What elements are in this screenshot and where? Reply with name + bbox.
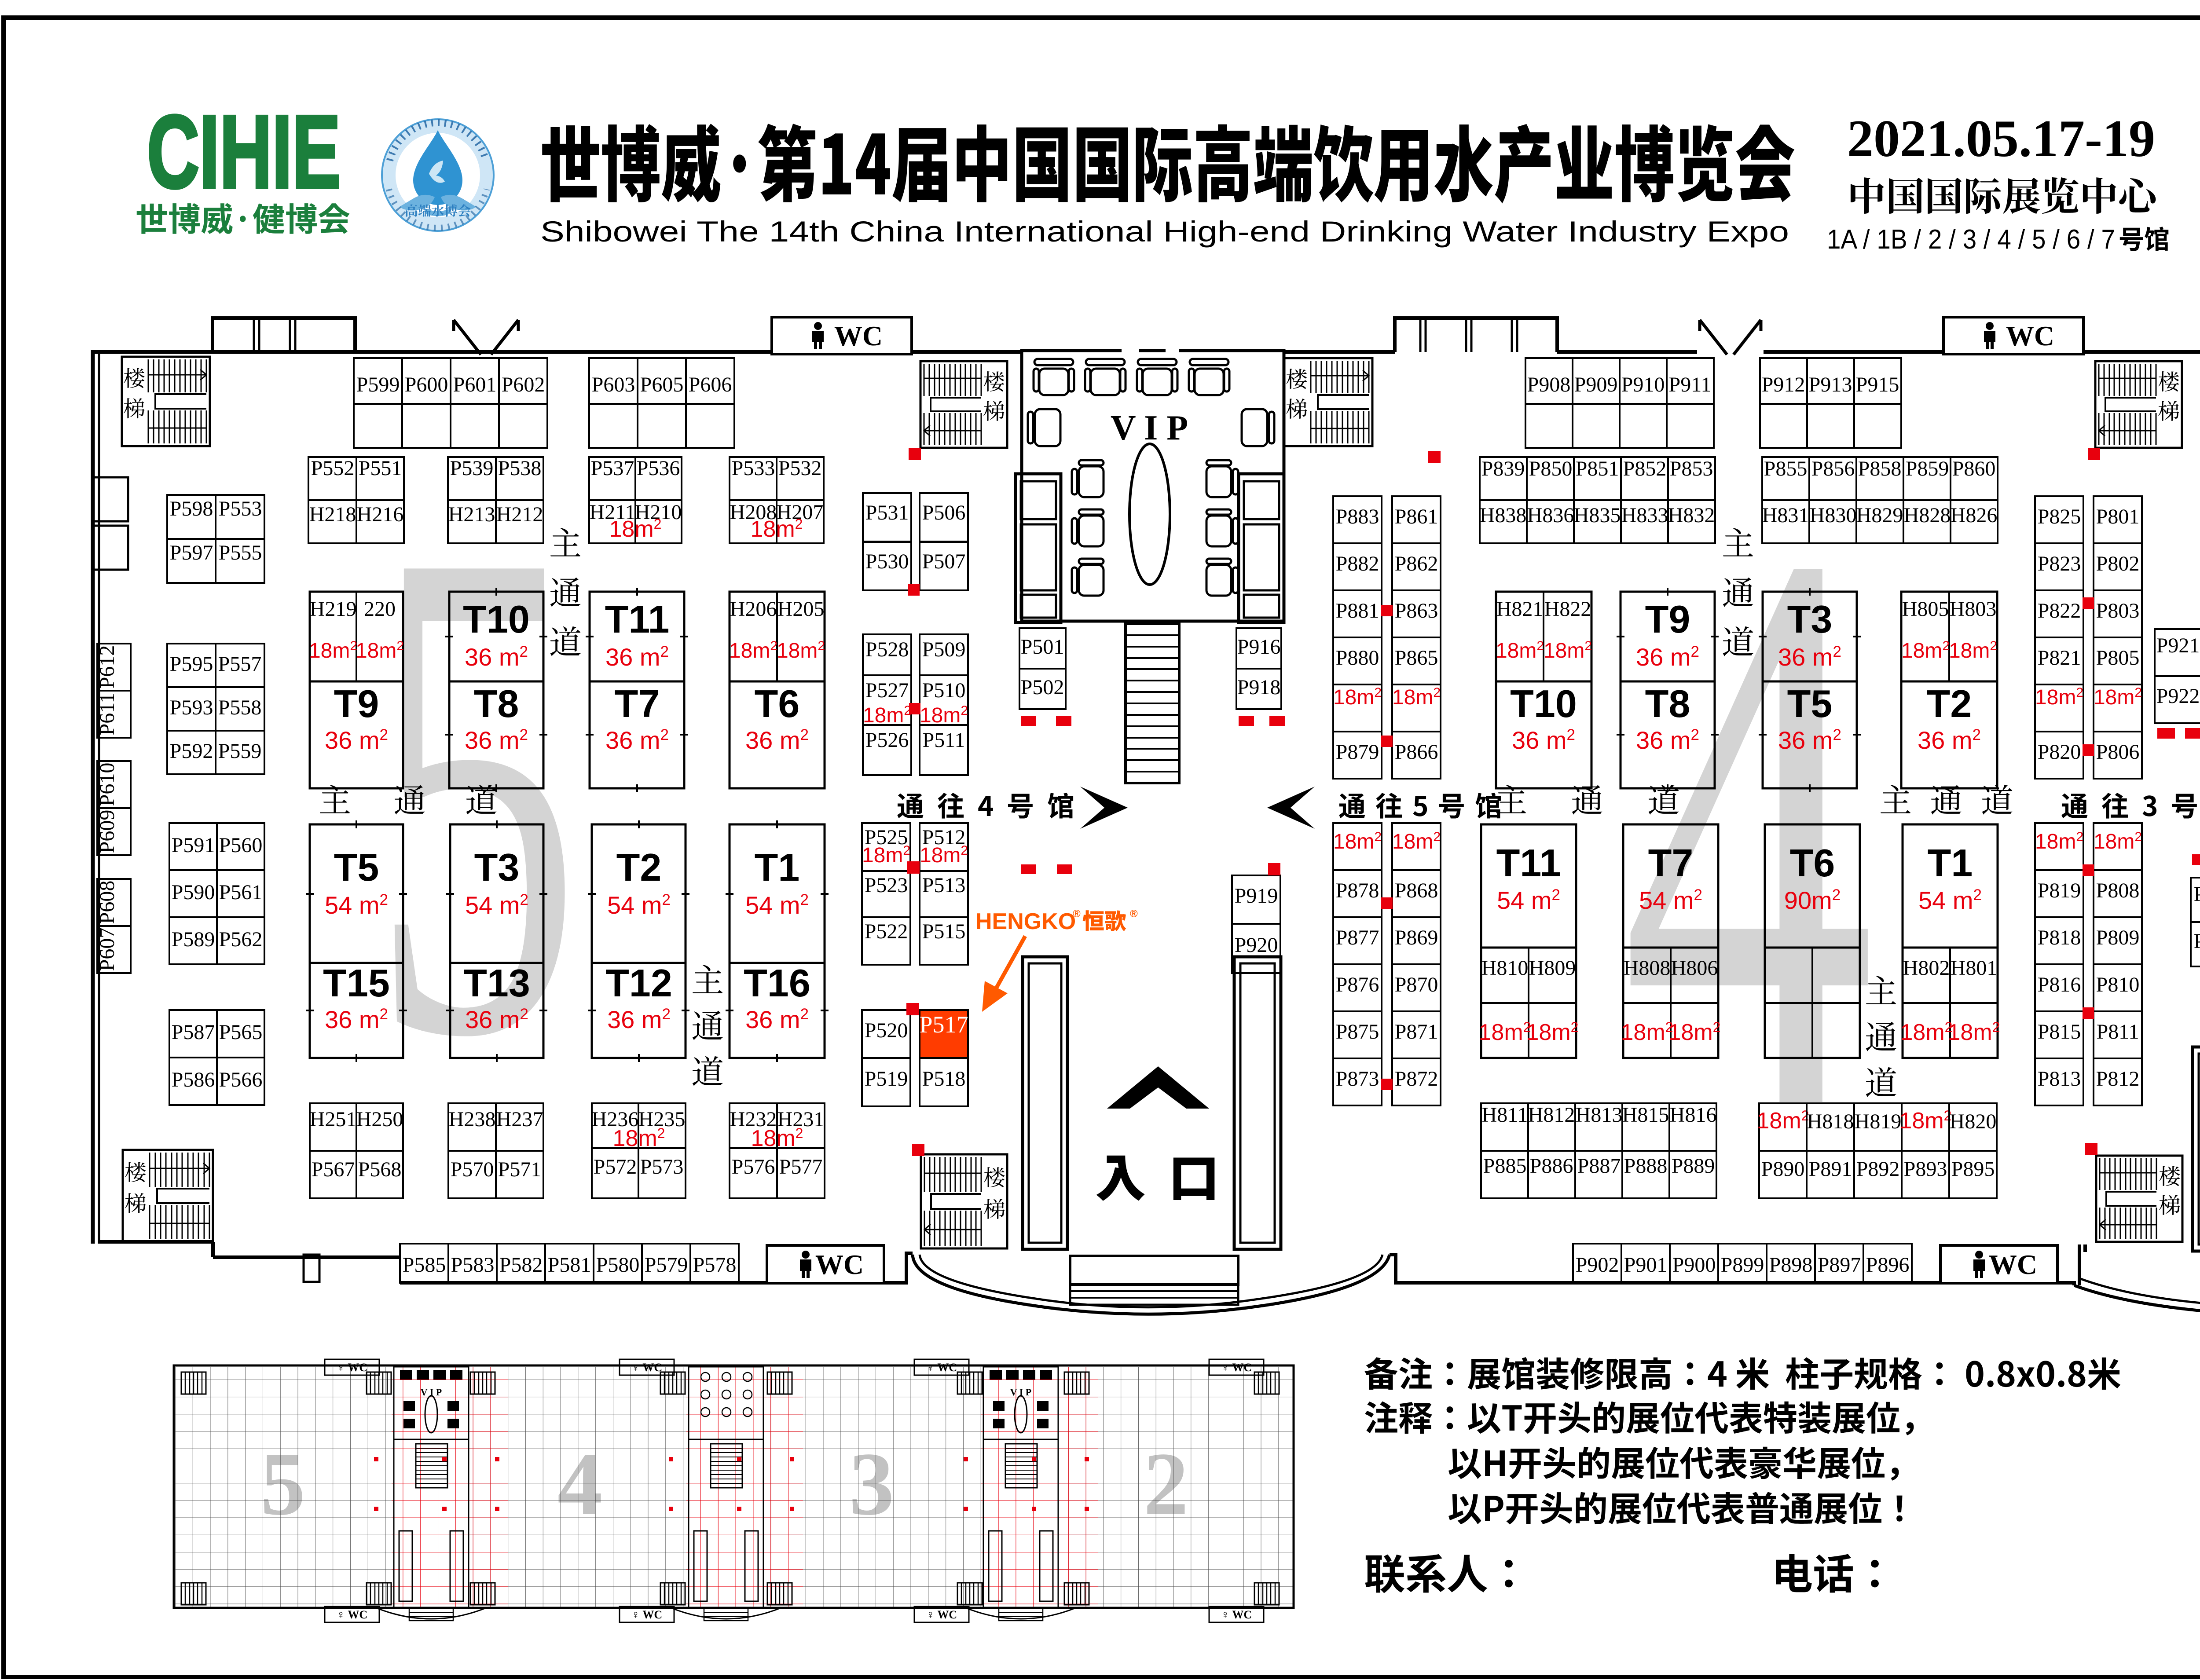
svg-text:H816: H816	[1670, 1103, 1717, 1127]
svg-text:P573: P573	[640, 1155, 684, 1179]
svg-text:2021.05.17-19: 2021.05.17-19	[1847, 109, 2155, 168]
svg-text:T1: T1	[755, 845, 800, 889]
svg-text:P922: P922	[2156, 684, 2200, 708]
svg-text:P919: P919	[1235, 884, 1278, 908]
svg-text:H212: H212	[496, 503, 543, 526]
svg-text:H218: H218	[309, 503, 356, 526]
svg-text:P876: P876	[1336, 973, 1379, 996]
svg-text:P533: P533	[732, 457, 775, 480]
svg-text:CIHIE: CIHIE	[147, 94, 341, 209]
svg-text:H251: H251	[310, 1108, 357, 1131]
svg-text:P850: P850	[1529, 457, 1573, 480]
svg-text:18m2: 18m2	[1900, 1019, 1953, 1045]
svg-text:P820: P820	[2038, 740, 2081, 764]
svg-text:♀ WC: ♀ WC	[1221, 1608, 1252, 1621]
svg-text:36 m2: 36 m2	[607, 1006, 671, 1033]
svg-text:P557: P557	[218, 652, 262, 676]
svg-text:P886: P886	[1530, 1154, 1573, 1178]
svg-text:H836: H836	[1527, 504, 1574, 527]
svg-text:P810: P810	[2096, 973, 2140, 996]
svg-text:P576: P576	[732, 1155, 775, 1179]
svg-text:P878: P878	[1336, 879, 1379, 902]
svg-text:T10: T10	[463, 597, 530, 641]
svg-text:P813: P813	[2038, 1067, 2081, 1091]
svg-text:36 m2: 36 m2	[1778, 643, 1841, 671]
svg-text:P819: P819	[2038, 879, 2081, 902]
svg-text:H206: H206	[730, 597, 777, 621]
svg-text:P560: P560	[219, 834, 263, 857]
svg-text:P870: P870	[1395, 973, 1438, 996]
svg-text:♀ WC: ♀ WC	[631, 1608, 662, 1621]
svg-text:54 m2: 54 m2	[745, 891, 809, 919]
svg-text:P882: P882	[1336, 552, 1379, 575]
svg-text:♀ WC: ♀ WC	[337, 1608, 367, 1621]
svg-text:P517: P517	[919, 1011, 968, 1038]
svg-text:P853: P853	[1670, 457, 1713, 480]
svg-text:P582: P582	[499, 1253, 543, 1277]
svg-text:36 m2: 36 m2	[465, 726, 528, 754]
svg-text:P879: P879	[1336, 740, 1379, 764]
svg-text:P859: P859	[1906, 457, 1949, 480]
svg-text:P526: P526	[865, 728, 909, 752]
svg-text:P899: P899	[1721, 1253, 1764, 1277]
svg-text:P900: P900	[1672, 1253, 1716, 1277]
svg-text:T12: T12	[605, 961, 672, 1005]
svg-text:P528: P528	[865, 638, 909, 661]
svg-text:H833: H833	[1621, 504, 1668, 527]
svg-text:P909: P909	[1574, 373, 1618, 396]
svg-text:H805: H805	[1902, 597, 1949, 621]
svg-text:T8: T8	[474, 682, 519, 725]
svg-text:H835: H835	[1574, 504, 1621, 527]
svg-text:P887: P887	[1577, 1154, 1621, 1178]
svg-text:T7: T7	[615, 682, 660, 725]
svg-text:P532: P532	[778, 457, 822, 480]
svg-text:H829: H829	[1856, 504, 1903, 527]
svg-text:P821: P821	[2038, 646, 2081, 670]
svg-text:P891: P891	[1809, 1157, 1852, 1181]
svg-text:36 m2: 36 m2	[1636, 726, 1699, 754]
svg-text:1A / 1B / 2 / 3 / 4 / 5 / 6 /: 1A / 1B / 2 / 3 / 4 / 5 / 6 / 7	[1827, 224, 2115, 255]
svg-text:T3: T3	[1787, 597, 1833, 641]
svg-text:P601: P601	[453, 373, 497, 396]
svg-text:P869: P869	[1395, 926, 1438, 949]
svg-text:T2: T2	[1927, 682, 1972, 725]
svg-text:P915: P915	[1856, 373, 1899, 396]
svg-text:P895: P895	[1951, 1157, 1995, 1181]
svg-text:P612: P612	[95, 645, 119, 689]
svg-text:P578: P578	[693, 1253, 737, 1277]
svg-text:P908: P908	[1527, 373, 1571, 396]
svg-text:36 m2: 36 m2	[605, 726, 669, 754]
svg-text:P863: P863	[1395, 599, 1438, 622]
svg-text:P558: P558	[218, 696, 262, 719]
svg-text:♀ WC: ♀ WC	[1221, 1361, 1252, 1374]
svg-text:P801: P801	[2096, 505, 2140, 528]
svg-text:P868: P868	[1395, 879, 1438, 902]
svg-text:P555: P555	[219, 541, 262, 564]
svg-text:P883: P883	[1336, 505, 1379, 528]
svg-text:®: ®	[1073, 908, 1081, 920]
svg-text:P579: P579	[645, 1253, 688, 1277]
svg-text:36 m2: 36 m2	[325, 726, 388, 754]
svg-text:54 m2: 54 m2	[1639, 886, 1702, 914]
svg-text:P530: P530	[865, 550, 909, 573]
svg-text:P537: P537	[591, 457, 634, 480]
svg-text:36 m2: 36 m2	[1918, 726, 1981, 754]
svg-text:54 m2: 54 m2	[1918, 886, 1982, 914]
svg-text:H237: H237	[496, 1108, 543, 1131]
svg-text:P856: P856	[1811, 457, 1855, 480]
svg-text:WC: WC	[2006, 320, 2054, 351]
svg-text:P552: P552	[311, 457, 355, 480]
svg-text:P802: P802	[2096, 552, 2140, 575]
svg-text:T5: T5	[334, 845, 379, 889]
svg-text:36 m2: 36 m2	[745, 726, 809, 754]
svg-text:220: 220	[364, 597, 396, 621]
svg-text:P518: P518	[922, 1067, 966, 1091]
svg-text:P607: P607	[95, 928, 119, 971]
svg-text:P602: P602	[502, 373, 545, 396]
svg-text:H826: H826	[1951, 504, 1998, 527]
svg-text:H811: H811	[1482, 1103, 1528, 1127]
svg-text:H809: H809	[1529, 956, 1576, 980]
svg-text:P823: P823	[2038, 552, 2081, 575]
svg-text:P519: P519	[865, 1067, 908, 1091]
svg-text:P890: P890	[1761, 1157, 1805, 1181]
svg-text:18m2: 18m2	[751, 1125, 803, 1151]
svg-text:H813: H813	[1576, 1103, 1623, 1127]
svg-text:H213: H213	[448, 503, 495, 526]
svg-text:H838: H838	[1480, 504, 1527, 527]
svg-text:18m2: 18m2	[1668, 1019, 1721, 1045]
svg-text:♀ WC: ♀ WC	[337, 1361, 367, 1374]
svg-text:P811: P811	[2097, 1020, 2139, 1043]
svg-text:18m2: 18m2	[751, 516, 803, 542]
svg-text:P901: P901	[1624, 1253, 1668, 1277]
svg-text:P523: P523	[865, 874, 908, 897]
svg-text:T15: T15	[323, 961, 390, 1005]
svg-text:18m2: 18m2	[1621, 1019, 1673, 1045]
svg-text:H821: H821	[1496, 597, 1544, 621]
svg-text:P920: P920	[1235, 933, 1278, 957]
svg-text:T1: T1	[1928, 841, 1973, 885]
svg-text:P600: P600	[405, 373, 448, 396]
svg-text:P892: P892	[1856, 1157, 1900, 1181]
svg-text:P875: P875	[1336, 1020, 1379, 1043]
svg-text:P603: P603	[592, 373, 635, 396]
svg-text:P527: P527	[865, 679, 909, 702]
svg-text:T9: T9	[1645, 597, 1690, 641]
svg-text:H831: H831	[1762, 504, 1809, 527]
svg-text:P888: P888	[1624, 1154, 1668, 1178]
svg-text:P910: P910	[1621, 373, 1665, 396]
svg-text:P593: P593	[170, 696, 213, 719]
svg-text:♀ WC: ♀ WC	[631, 1361, 662, 1374]
svg-text:T11: T11	[1496, 841, 1561, 885]
svg-text:P881: P881	[1336, 599, 1379, 622]
svg-text:H820: H820	[1950, 1110, 1997, 1133]
svg-text:P923: P923	[2194, 882, 2200, 906]
svg-text:P606: P606	[689, 373, 732, 396]
svg-text:36 m2: 36 m2	[465, 643, 528, 671]
svg-text:P501: P501	[1021, 635, 1064, 659]
svg-text:H802: H802	[1903, 956, 1950, 980]
svg-text:18m2: 18m2	[613, 1125, 665, 1151]
svg-text:36 m2: 36 m2	[1512, 726, 1575, 754]
svg-text:P559: P559	[218, 739, 262, 763]
svg-text:P592: P592	[170, 739, 213, 763]
svg-text:P581: P581	[548, 1253, 591, 1277]
svg-text:P585: P585	[403, 1253, 446, 1277]
svg-text:P860: P860	[1952, 457, 1996, 480]
svg-text:P522: P522	[865, 920, 908, 943]
svg-text:P815: P815	[2038, 1020, 2081, 1043]
svg-text:T3: T3	[474, 845, 520, 889]
svg-text:P551: P551	[359, 457, 402, 480]
svg-text:P916: P916	[1237, 635, 1281, 659]
svg-text:P880: P880	[1336, 646, 1379, 670]
svg-text:H822: H822	[1544, 597, 1591, 621]
svg-text:H806: H806	[1671, 956, 1718, 980]
svg-text:T6: T6	[755, 682, 800, 725]
svg-text:P610: P610	[95, 763, 119, 806]
svg-text:P898: P898	[1769, 1253, 1813, 1277]
svg-text:54 m2: 54 m2	[607, 891, 671, 919]
svg-text:H238: H238	[449, 1108, 496, 1131]
svg-text:P520: P520	[865, 1019, 908, 1042]
svg-text:P595: P595	[170, 652, 213, 676]
svg-text:P515: P515	[922, 920, 966, 943]
svg-text:36 m2: 36 m2	[1778, 726, 1841, 754]
svg-text:P839: P839	[1481, 457, 1525, 480]
svg-text:H812: H812	[1528, 1103, 1575, 1127]
svg-text:T16: T16	[744, 961, 810, 1005]
svg-text:P568: P568	[358, 1158, 402, 1181]
svg-text:P538: P538	[498, 457, 542, 480]
svg-text:P531: P531	[865, 501, 909, 524]
svg-text:P598: P598	[170, 497, 213, 520]
svg-text:P885: P885	[1483, 1154, 1527, 1178]
svg-text:H250: H250	[356, 1108, 403, 1131]
svg-text:H828: H828	[1904, 504, 1951, 527]
svg-text:V I P: V I P	[1111, 409, 1188, 447]
svg-text:P816: P816	[2038, 973, 2081, 996]
svg-text:Shibowei The 14th China Intern: Shibowei The 14th China International Hi…	[540, 215, 1789, 248]
svg-text:H216: H216	[357, 503, 404, 526]
svg-text:P805: P805	[2096, 646, 2140, 670]
svg-text:P889: P889	[1672, 1154, 1715, 1178]
svg-text:P591: P591	[172, 834, 215, 857]
svg-text:P609: P609	[95, 810, 119, 853]
svg-text:P570: P570	[451, 1158, 494, 1181]
svg-text:P808: P808	[2096, 879, 2140, 902]
svg-text:P590: P590	[172, 881, 215, 904]
svg-text:P536: P536	[637, 457, 680, 480]
svg-text:P605: P605	[640, 373, 684, 396]
svg-text:36 m2: 36 m2	[465, 1006, 528, 1033]
svg-text:T11: T11	[605, 597, 670, 641]
svg-text:P611: P611	[95, 693, 119, 736]
svg-text:P511: P511	[923, 728, 965, 752]
svg-text:H808: H808	[1624, 956, 1671, 980]
svg-text:P507: P507	[922, 550, 966, 573]
svg-text:P812: P812	[2096, 1067, 2140, 1091]
svg-text:P608: P608	[95, 881, 119, 924]
svg-text:P509: P509	[922, 638, 966, 661]
svg-text:P862: P862	[1395, 552, 1438, 575]
svg-text:H205: H205	[777, 597, 825, 621]
svg-text:P855: P855	[1764, 457, 1808, 480]
svg-text:P865: P865	[1395, 646, 1438, 670]
svg-text:P852: P852	[1623, 457, 1667, 480]
svg-text:T13: T13	[463, 961, 530, 1005]
svg-text:H819: H819	[1855, 1110, 1902, 1133]
svg-text:P902: P902	[1576, 1253, 1619, 1277]
svg-text:H219: H219	[310, 597, 357, 621]
svg-text:♀ WC: ♀ WC	[926, 1361, 957, 1374]
svg-text:P572: P572	[594, 1155, 637, 1179]
svg-text:P871: P871	[1395, 1020, 1438, 1043]
svg-text:P818: P818	[2038, 926, 2081, 949]
svg-text:36 m2: 36 m2	[745, 1006, 809, 1033]
svg-text:P571: P571	[498, 1158, 542, 1181]
svg-text:P513: P513	[922, 874, 966, 897]
svg-text:P587: P587	[172, 1021, 215, 1044]
svg-text:H803: H803	[1950, 597, 1997, 621]
svg-text:H815: H815	[1622, 1103, 1669, 1127]
svg-text:18m2: 18m2	[1757, 1108, 1809, 1134]
svg-text:T7: T7	[1648, 841, 1694, 885]
svg-text:P580: P580	[596, 1253, 640, 1277]
svg-text:54 m2: 54 m2	[1497, 886, 1560, 914]
svg-text:P872: P872	[1395, 1067, 1438, 1091]
svg-text:P803: P803	[2096, 599, 2140, 622]
svg-text:P912: P912	[1762, 373, 1805, 396]
svg-text:P825: P825	[2038, 505, 2081, 528]
svg-text:P586: P586	[172, 1068, 215, 1091]
svg-text:36 m2: 36 m2	[325, 1006, 388, 1033]
svg-text:T5: T5	[1787, 682, 1833, 725]
svg-text:H818: H818	[1807, 1110, 1854, 1133]
svg-text:P553: P553	[219, 497, 262, 520]
svg-text:P806: P806	[2096, 740, 2140, 764]
svg-text:T8: T8	[1645, 682, 1690, 725]
svg-text:P873: P873	[1336, 1067, 1379, 1091]
svg-text:P567: P567	[312, 1158, 355, 1181]
svg-text:P506: P506	[922, 501, 966, 524]
svg-text:P861: P861	[1395, 505, 1438, 528]
svg-text:P562: P562	[219, 928, 263, 951]
svg-text:P566: P566	[219, 1068, 263, 1091]
svg-text:H810: H810	[1481, 956, 1529, 980]
svg-text:T6: T6	[1790, 841, 1835, 885]
svg-text:P599: P599	[356, 373, 400, 396]
svg-text:P539: P539	[450, 457, 494, 480]
svg-text:P925: P925	[2194, 930, 2200, 953]
svg-text:P589: P589	[172, 928, 215, 951]
svg-text:P510: P510	[922, 679, 966, 702]
svg-text:P877: P877	[1336, 926, 1379, 949]
svg-text:HENGKO: HENGKO	[975, 909, 1076, 934]
svg-text:H832: H832	[1668, 504, 1715, 527]
svg-text:WC: WC	[834, 320, 883, 351]
svg-text:P913: P913	[1809, 373, 1852, 396]
svg-text:P893: P893	[1904, 1157, 1947, 1181]
svg-text:®: ®	[1130, 908, 1138, 920]
svg-text:T10: T10	[1510, 682, 1577, 725]
svg-text:P918: P918	[1237, 676, 1281, 699]
svg-text:P851: P851	[1576, 457, 1619, 480]
svg-text:P866: P866	[1395, 740, 1438, 764]
svg-text:P565: P565	[219, 1021, 263, 1044]
svg-text:P561: P561	[219, 881, 263, 904]
svg-text:T9: T9	[334, 682, 379, 725]
svg-text:WC: WC	[1989, 1249, 2037, 1280]
svg-text:P858: P858	[1858, 457, 1902, 480]
svg-text:P911: P911	[1669, 373, 1712, 396]
svg-text:18m2: 18m2	[1948, 1019, 2000, 1045]
svg-text:36 m2: 36 m2	[605, 643, 669, 671]
svg-text:♀ WC: ♀ WC	[926, 1608, 957, 1621]
svg-text:18m2: 18m2	[1479, 1019, 1531, 1045]
svg-text:P921: P921	[2156, 634, 2200, 657]
svg-text:18m2: 18m2	[1526, 1019, 1579, 1045]
svg-text:P597: P597	[170, 541, 213, 564]
svg-text:18m2: 18m2	[609, 516, 662, 542]
svg-text:P809: P809	[2096, 926, 2140, 949]
svg-text:P583: P583	[451, 1253, 495, 1277]
svg-text:54 m2: 54 m2	[325, 891, 388, 919]
svg-text:P896: P896	[1866, 1253, 1910, 1277]
svg-text:36 m2: 36 m2	[1636, 643, 1699, 671]
svg-text:P822: P822	[2038, 599, 2081, 622]
svg-text:P897: P897	[1818, 1253, 1861, 1277]
svg-text:H830: H830	[1810, 504, 1857, 527]
svg-text:54 m2: 54 m2	[465, 891, 528, 919]
svg-text:P577: P577	[779, 1155, 823, 1179]
svg-text:H801: H801	[1951, 956, 1998, 980]
svg-text:18m2: 18m2	[1899, 1108, 1952, 1134]
svg-text:P502: P502	[1021, 676, 1064, 699]
svg-text:T2: T2	[616, 845, 662, 889]
svg-text:WC: WC	[815, 1249, 864, 1280]
